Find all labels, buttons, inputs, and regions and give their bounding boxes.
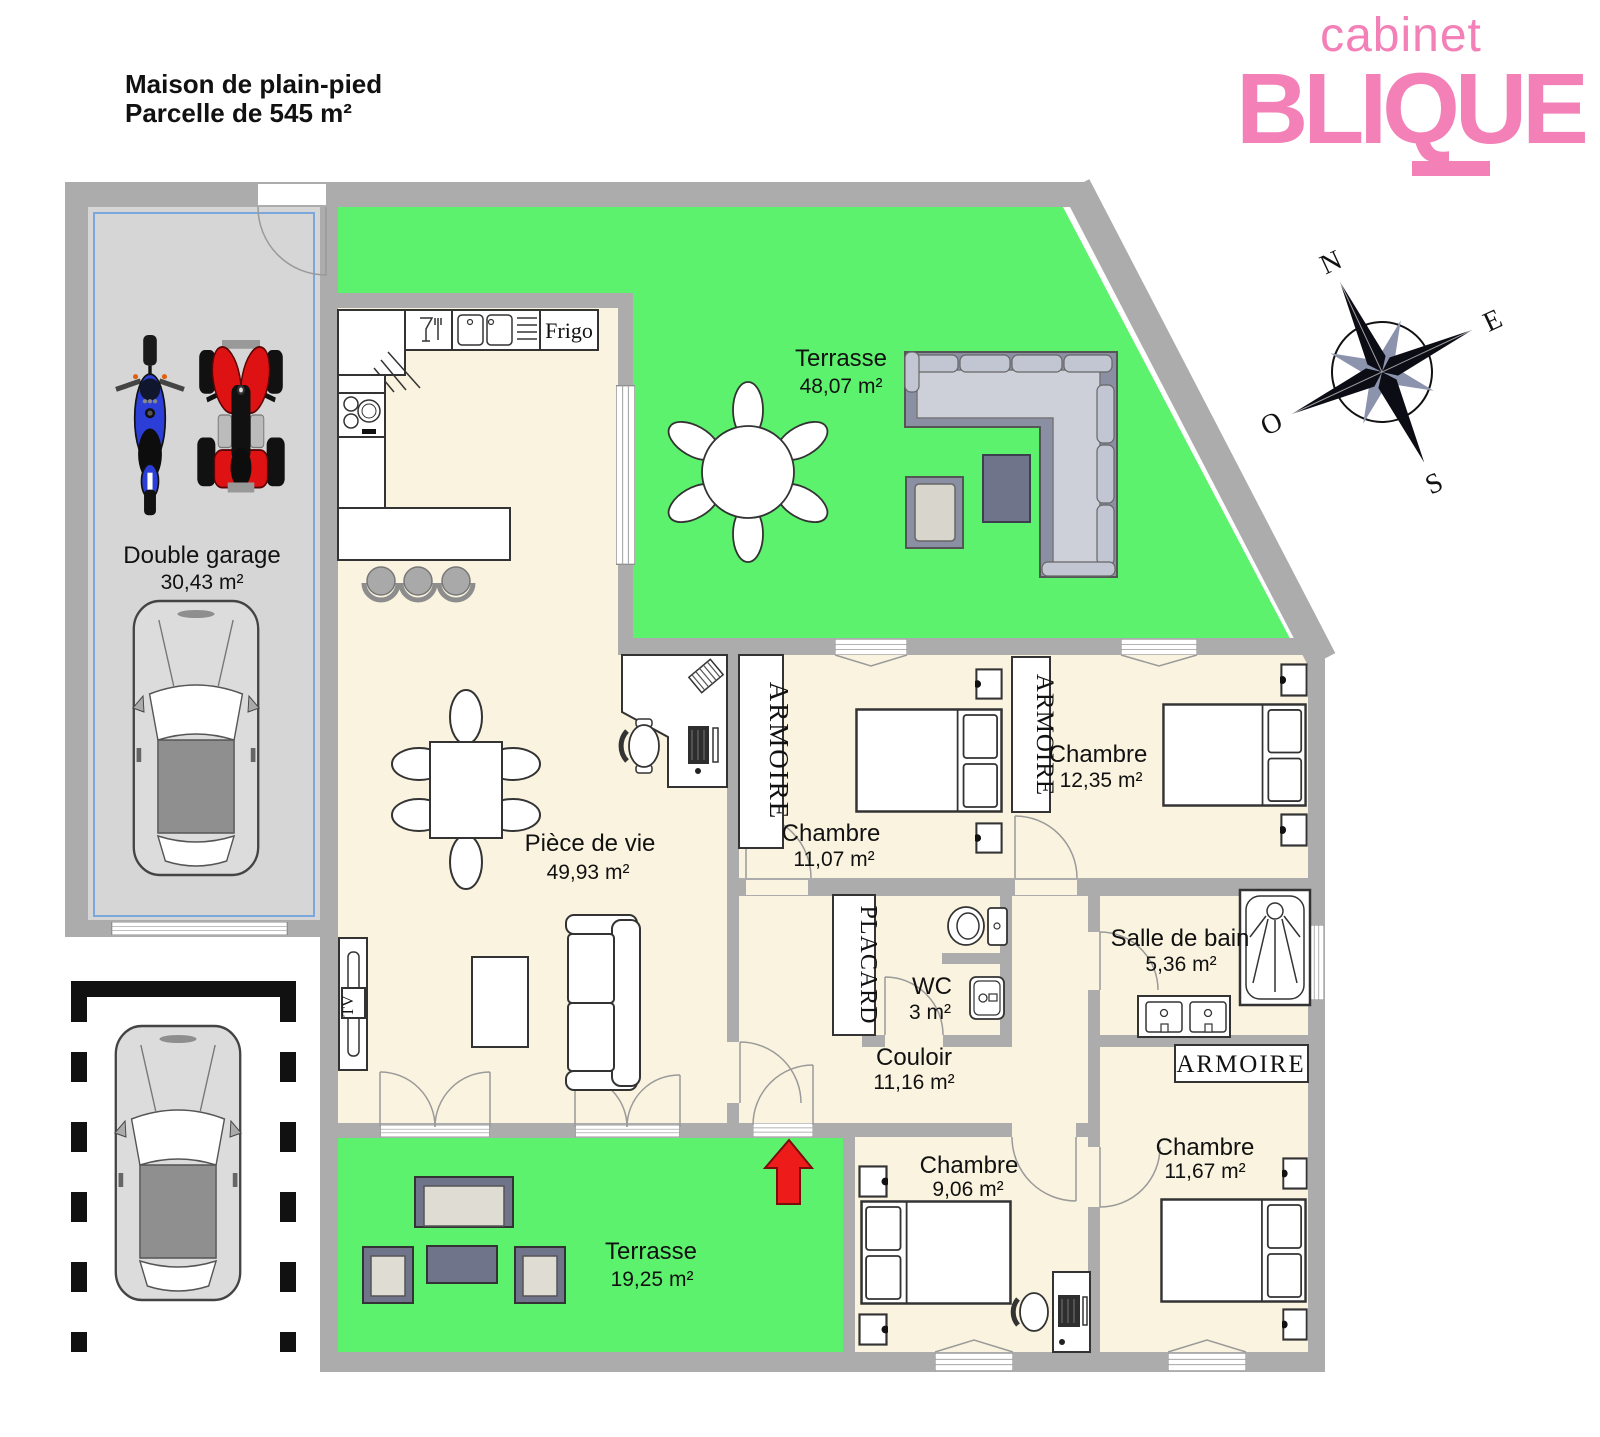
wc-sink (970, 977, 1004, 1019)
bedroom4-window (1168, 1353, 1246, 1371)
desk-area (621, 655, 727, 787)
garage-area: 30,43 m² (161, 571, 244, 594)
toilet (948, 907, 1007, 945)
bedroom4-wardrobe-label: ARMOIRE (1176, 1051, 1305, 1078)
bedroom2-area: 12,35 m² (1060, 769, 1143, 792)
bathroom-name: Salle de bain (1111, 925, 1250, 952)
terrace-bottom-area: 19,25 m² (611, 1268, 694, 1291)
fridge-label: Frigo (545, 318, 593, 343)
terrace-bottom-grass (338, 1123, 843, 1363)
coffee-table (472, 957, 528, 1047)
terrace-armchair (906, 477, 963, 548)
compass-west: O (1256, 406, 1287, 443)
bedroom1-bed (856, 710, 1001, 812)
logo-blique-text: BLIQUE (1220, 63, 1600, 155)
hallway-closet: PLACARD (833, 895, 881, 1035)
tv-unit: TV (339, 938, 367, 1070)
garage-car (133, 601, 259, 875)
glass-cabinet (405, 310, 452, 350)
kitchen-window (616, 385, 635, 565)
bedroom1-area: 11,07 m² (793, 848, 874, 871)
wc-area: 3 m² (909, 1001, 951, 1024)
compass-rose: N E O S (1205, 194, 1559, 554)
garage-door-opening (111, 922, 288, 935)
hallway-closet-label: PLACARD (855, 905, 881, 1024)
bedroom2-wardrobe-label: ARMOIRE (1031, 674, 1058, 796)
bedroom4-name: Chambre (1156, 1134, 1255, 1161)
compass-east: E (1478, 303, 1507, 338)
plan-title: Maison de plain-pied Parcelle de 545 m² (125, 70, 382, 128)
agency-logo: cabinet BLIQUE (1150, 8, 1600, 176)
bedroom2-bed (1163, 704, 1305, 805)
living-name: Pièce de vie (525, 830, 656, 857)
entrance-opening (753, 1123, 813, 1137)
hallway-area: 11,16 m² (873, 1071, 954, 1094)
bedroom3-area: 9,06 m² (932, 1178, 1003, 1201)
compass-south: S (1421, 467, 1448, 502)
bedroom1-wardrobe-label: ARMOIRE (764, 682, 794, 821)
terrace-top-name: Terrasse (795, 345, 887, 372)
living-area: 49,93 m² (547, 861, 630, 884)
bathroom-vanity (1138, 996, 1230, 1037)
wc-name: WC (912, 973, 952, 1000)
living-sofa (566, 915, 640, 1090)
bathroom-area: 5,36 m² (1145, 953, 1216, 976)
stove (338, 375, 385, 510)
plan-title-line1: Maison de plain-pied (125, 70, 382, 99)
plan-title-line2: Parcelle de 545 m² (125, 99, 382, 128)
floorplan-page: Maison de plain-pied Parcelle de 545 m² … (0, 0, 1600, 1437)
parking-car (115, 1026, 241, 1300)
compass-north: N (1315, 244, 1346, 281)
hallway-name: Couloir (876, 1044, 952, 1071)
kitchen-island (338, 508, 510, 560)
bedroom4-area: 11,67 m² (1164, 1160, 1245, 1183)
tv-label: TV (340, 995, 357, 1017)
bedroom3-window (935, 1353, 1013, 1371)
bedroom1-name: Chambre (782, 820, 881, 847)
floorplan-drawing: Frigo (0, 0, 1600, 1437)
kitchen-sink (452, 310, 540, 350)
bar-stools (364, 567, 473, 600)
terrace-side-table (983, 455, 1030, 522)
bedroom2-name: Chambre (1049, 741, 1148, 768)
bedroom1-window (835, 639, 907, 655)
parking-spot (79, 989, 288, 1352)
bedroom4-bed (1161, 1200, 1305, 1302)
garage-name: Double garage (123, 542, 280, 569)
bedroom2-window (1121, 639, 1197, 655)
fridge: Frigo (540, 310, 598, 350)
bedroom3-name: Chambre (920, 1152, 1019, 1179)
terrace-top-area: 48,07 m² (800, 375, 883, 398)
shower (1240, 890, 1310, 1005)
terrace-bottom-name: Terrasse (605, 1238, 697, 1265)
